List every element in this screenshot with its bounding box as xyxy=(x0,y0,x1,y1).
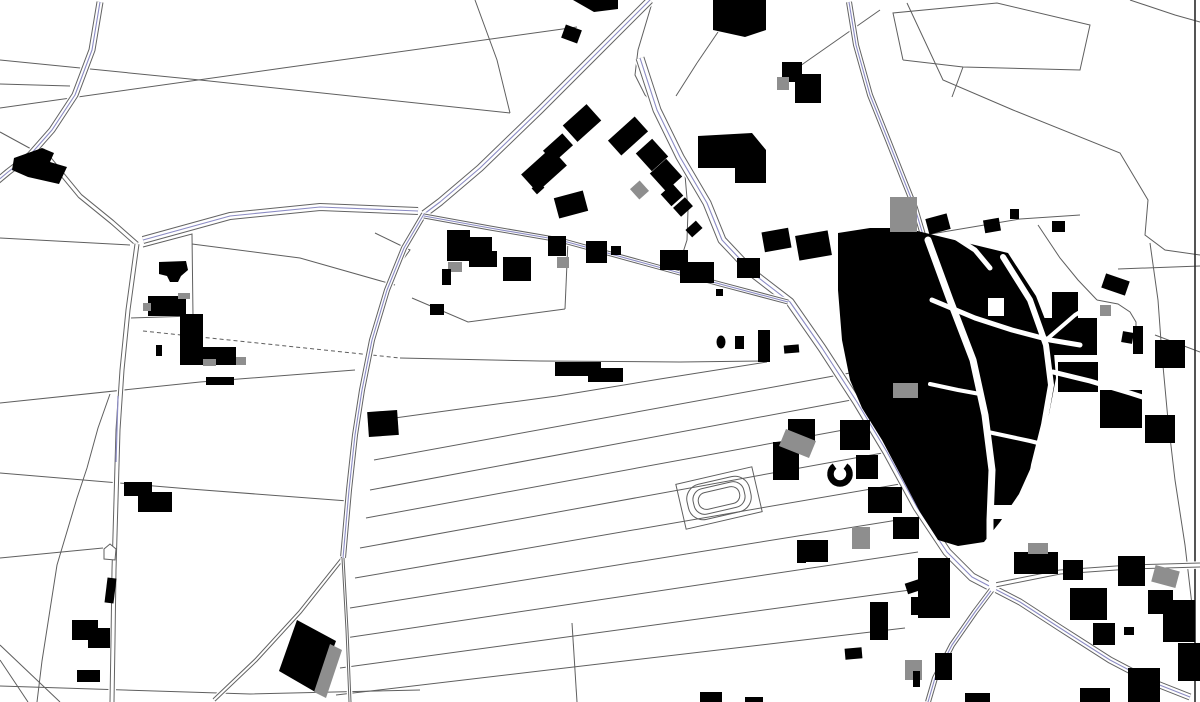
courtyard-patch xyxy=(988,298,1004,316)
building-footprint xyxy=(700,692,722,702)
building-footprint-secondary xyxy=(203,359,216,366)
courtyard-patch xyxy=(993,505,1013,519)
water-feature xyxy=(1101,273,1130,295)
parcel-line xyxy=(572,623,577,702)
building-footprint xyxy=(554,190,588,218)
parcel-line xyxy=(800,10,880,66)
building-footprint xyxy=(893,418,921,444)
building-footprint xyxy=(503,257,531,281)
parcel-line xyxy=(0,132,33,150)
building-footprint xyxy=(88,628,110,648)
building-footprint xyxy=(555,362,623,382)
road-casing xyxy=(343,214,424,558)
building-footprint xyxy=(935,653,952,680)
building-footprint xyxy=(797,540,828,562)
building-footprint xyxy=(1145,415,1175,443)
building-footprint xyxy=(1133,326,1143,354)
athletics-track xyxy=(676,467,762,529)
building-footprint xyxy=(77,670,100,682)
building-footprint xyxy=(795,74,821,103)
building-footprint xyxy=(713,0,766,37)
water-feature xyxy=(937,402,950,413)
building-footprint xyxy=(856,455,878,479)
building-footprint xyxy=(586,241,607,263)
parcel-line xyxy=(697,32,718,63)
water-feature xyxy=(206,377,234,385)
building-footprint xyxy=(611,246,621,255)
building-footprint xyxy=(1155,340,1185,368)
building-footprint xyxy=(1070,588,1107,620)
parcel-line xyxy=(1038,225,1097,300)
water-feature xyxy=(735,336,744,349)
water-feature xyxy=(1124,627,1134,635)
building-footprint xyxy=(1118,556,1145,586)
building-footprint-secondary xyxy=(557,257,569,268)
parcel-line xyxy=(400,358,768,362)
building-footprint-secondary xyxy=(1028,543,1048,554)
parcel-line xyxy=(0,660,28,702)
building-footprint xyxy=(840,420,870,450)
building-footprint xyxy=(761,228,791,252)
building-footprint xyxy=(716,289,723,296)
road-edges xyxy=(343,214,424,558)
water-feature xyxy=(784,344,800,353)
building-footprint xyxy=(965,693,990,702)
parcel-line xyxy=(1130,0,1200,22)
building-footprint xyxy=(983,218,1001,234)
building-footprint xyxy=(680,262,714,283)
water-feature xyxy=(845,647,863,659)
site-plan-svg xyxy=(0,0,1200,702)
water-feature xyxy=(1121,331,1134,344)
horseshoe-building xyxy=(831,466,850,483)
building-footprint xyxy=(1052,221,1065,232)
parcel-line xyxy=(475,0,510,113)
track-ring xyxy=(691,479,748,516)
building-footprint xyxy=(430,304,444,315)
building-footprint xyxy=(870,602,888,640)
building-footprint xyxy=(548,236,566,256)
water-feature xyxy=(717,336,726,349)
building-footprint xyxy=(737,258,760,278)
building-footprint xyxy=(1163,600,1195,642)
parcel-line xyxy=(350,518,910,608)
building-footprint-secondary xyxy=(236,357,246,365)
building-footprint xyxy=(367,410,399,437)
building-footprint xyxy=(868,487,902,513)
building-footprint-secondary xyxy=(777,77,789,90)
track-parcel-frame xyxy=(676,467,762,529)
road-accent-line xyxy=(343,214,424,558)
parcel-line xyxy=(1097,300,1136,333)
building-footprint xyxy=(563,104,602,142)
building-footprint xyxy=(1063,560,1083,580)
building-footprint xyxy=(893,517,919,539)
building-footprint xyxy=(1093,623,1115,645)
building-footprint xyxy=(698,133,766,183)
parcel-line xyxy=(0,473,348,501)
building-footprint-secondary xyxy=(630,180,649,199)
building-footprint xyxy=(447,230,497,267)
building-footprint-secondary xyxy=(893,383,918,398)
water-feature xyxy=(913,671,920,687)
map-canvas[interactable] xyxy=(0,0,1200,702)
track-ring xyxy=(697,485,742,511)
water-feature xyxy=(1010,209,1019,219)
building-footprint xyxy=(561,25,582,44)
building-footprint-secondary xyxy=(143,303,151,311)
track-rings xyxy=(676,467,762,529)
building-footprint-secondary xyxy=(852,527,870,549)
building-footprint xyxy=(180,314,203,365)
parcel-line xyxy=(0,238,130,245)
building-footprint xyxy=(1178,643,1200,681)
building-footprint xyxy=(758,330,770,362)
building-footprint xyxy=(795,230,832,260)
building-footprint xyxy=(1014,552,1058,574)
building-footprint xyxy=(1080,688,1110,702)
building-footprint-secondary xyxy=(1100,305,1111,316)
parcel-line xyxy=(340,588,925,668)
parcel-line xyxy=(0,370,355,403)
building-footprint xyxy=(12,148,67,184)
parcel-line xyxy=(1118,266,1200,269)
building-footprint xyxy=(573,0,618,12)
parcel-line xyxy=(676,63,697,96)
parcel-line xyxy=(192,244,395,285)
water-feature xyxy=(911,597,920,615)
parcel-line xyxy=(0,548,103,558)
building-footprint-secondary xyxy=(890,197,917,232)
building-footprint-secondary xyxy=(178,293,190,299)
parcel-line xyxy=(336,628,905,695)
parcel-line xyxy=(952,67,963,97)
building-footprint xyxy=(745,697,763,702)
ring-building xyxy=(831,466,850,483)
road-surface[interactable] xyxy=(343,214,424,558)
water-feature xyxy=(156,345,162,356)
building-footprint xyxy=(1128,668,1160,702)
parcel-line xyxy=(0,84,70,86)
water-feature xyxy=(159,261,188,282)
water-feature xyxy=(442,269,451,285)
